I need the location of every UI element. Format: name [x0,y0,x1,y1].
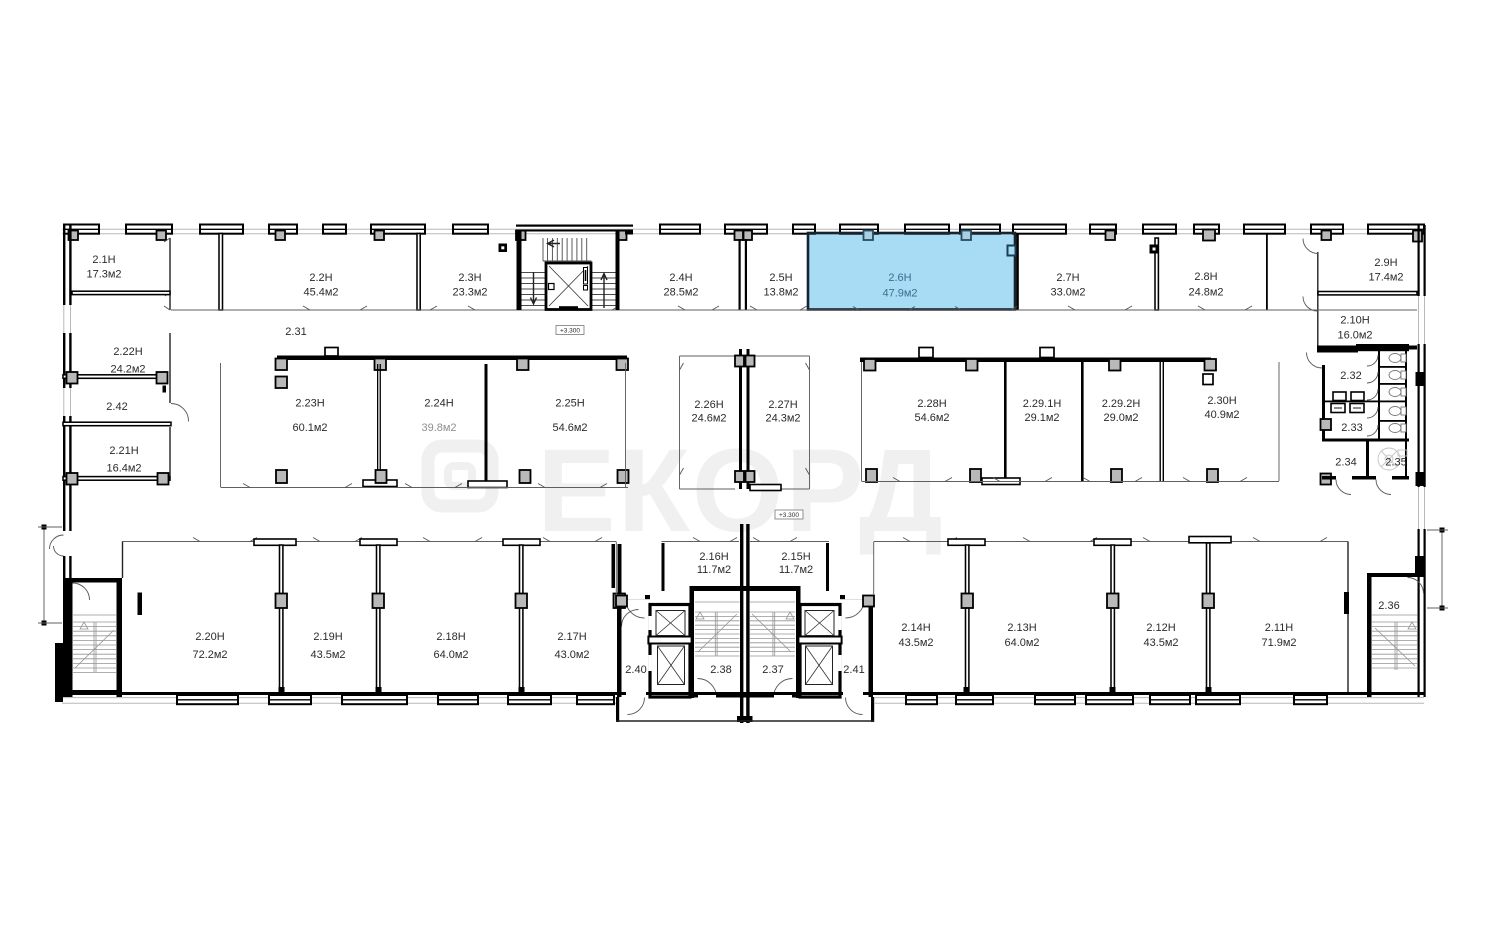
svg-text:17.3м2: 17.3м2 [86,269,121,281]
svg-text:29.0м2: 29.0м2 [1103,412,1138,424]
svg-text:+3.300: +3.300 [560,328,580,335]
svg-text:2.24Н: 2.24Н [424,398,453,410]
svg-text:33.0м2: 33.0м2 [1050,287,1085,299]
svg-text:2.10Н: 2.10Н [1340,315,1369,327]
svg-text:2.37: 2.37 [762,664,783,676]
svg-text:2.1Н: 2.1Н [92,254,115,266]
svg-text:23.3м2: 23.3м2 [452,287,487,299]
svg-text:11.7м2: 11.7м2 [779,564,813,576]
svg-text:2.25Н: 2.25Н [555,398,584,410]
svg-text:2.9Н: 2.9Н [1374,257,1397,269]
svg-text:2.41: 2.41 [843,664,864,676]
svg-text:2.14Н: 2.14Н [901,622,930,634]
svg-text:60.1м2: 60.1м2 [292,422,327,434]
svg-text:24.3м2: 24.3м2 [765,413,800,425]
svg-text:64.0м2: 64.0м2 [1004,637,1039,649]
svg-text:71.9м2: 71.9м2 [1261,637,1296,649]
svg-text:2.42: 2.42 [106,401,127,413]
svg-text:16.4м2: 16.4м2 [106,463,141,475]
svg-text:24.8м2: 24.8м2 [1188,287,1223,299]
svg-text:43.5м2: 43.5м2 [310,649,345,661]
svg-text:2.26Н: 2.26Н [694,399,723,411]
svg-text:2.34: 2.34 [1335,457,1356,469]
svg-text:2.27Н: 2.27Н [768,399,797,411]
svg-text:13.8м2: 13.8м2 [763,287,798,299]
svg-text:2.5Н: 2.5Н [769,272,792,284]
svg-text:2.12Н: 2.12Н [1146,622,1175,634]
svg-text:2.33: 2.33 [1341,422,1362,434]
svg-text:2.13Н: 2.13Н [1007,622,1036,634]
svg-text:2.6Н: 2.6Н [888,272,911,284]
svg-text:2.4Н: 2.4Н [669,272,692,284]
svg-text:43.0м2: 43.0м2 [554,649,589,661]
svg-text:2.28Н: 2.28Н [917,398,946,410]
svg-text:45.4м2: 45.4м2 [303,287,338,299]
svg-text:2.35: 2.35 [1385,457,1406,469]
svg-text:2.22Н: 2.22Н [113,346,142,358]
svg-text:54.6м2: 54.6м2 [914,412,949,424]
svg-text:11.7м2: 11.7м2 [697,564,731,576]
svg-text:2.3Н: 2.3Н [458,272,481,284]
svg-text:17.4м2: 17.4м2 [1368,272,1403,284]
svg-text:2.29.2Н: 2.29.2Н [1102,398,1141,410]
svg-text:2.31: 2.31 [285,326,306,338]
svg-text:2.30Н: 2.30Н [1207,395,1236,407]
svg-text:64.0м2: 64.0м2 [433,649,468,661]
svg-text:43.5м2: 43.5м2 [898,637,933,649]
svg-text:2.19Н: 2.19Н [313,631,342,643]
svg-text:2.20Н: 2.20Н [195,631,224,643]
svg-text:39.8м2: 39.8м2 [421,422,456,434]
svg-text:72.2м2: 72.2м2 [192,649,227,661]
svg-text:24.6м2: 24.6м2 [691,413,726,425]
svg-text:2.40: 2.40 [625,664,646,676]
svg-text:2.2Н: 2.2Н [309,272,332,284]
svg-text:2.21Н: 2.21Н [109,445,138,457]
svg-text:16.0м2: 16.0м2 [1337,330,1372,342]
svg-text:2.18Н: 2.18Н [436,631,465,643]
svg-text:43.5м2: 43.5м2 [1143,637,1178,649]
svg-text:2.16Н: 2.16Н [699,551,728,563]
svg-text:24.2м2: 24.2м2 [110,364,145,376]
svg-text:+3.300: +3.300 [779,512,799,519]
svg-text:2.17Н: 2.17Н [557,631,586,643]
svg-text:2.7Н: 2.7Н [1056,272,1079,284]
svg-text:2.38: 2.38 [710,664,731,676]
svg-text:2.23Н: 2.23Н [295,398,324,410]
svg-text:29.1м2: 29.1м2 [1024,412,1059,424]
svg-text:2.11Н: 2.11Н [1265,622,1294,634]
svg-text:2.29.1Н: 2.29.1Н [1023,398,1062,410]
svg-text:54.6м2: 54.6м2 [552,422,587,434]
svg-text:2.32: 2.32 [1340,370,1361,382]
svg-text:2.36: 2.36 [1378,600,1399,612]
svg-text:2.15Н: 2.15Н [781,551,810,563]
svg-text:28.5м2: 28.5м2 [663,287,698,299]
svg-text:47.9м2: 47.9м2 [882,288,917,300]
svg-text:2.8Н: 2.8Н [1194,271,1217,283]
svg-text:40.9м2: 40.9м2 [1204,409,1239,421]
